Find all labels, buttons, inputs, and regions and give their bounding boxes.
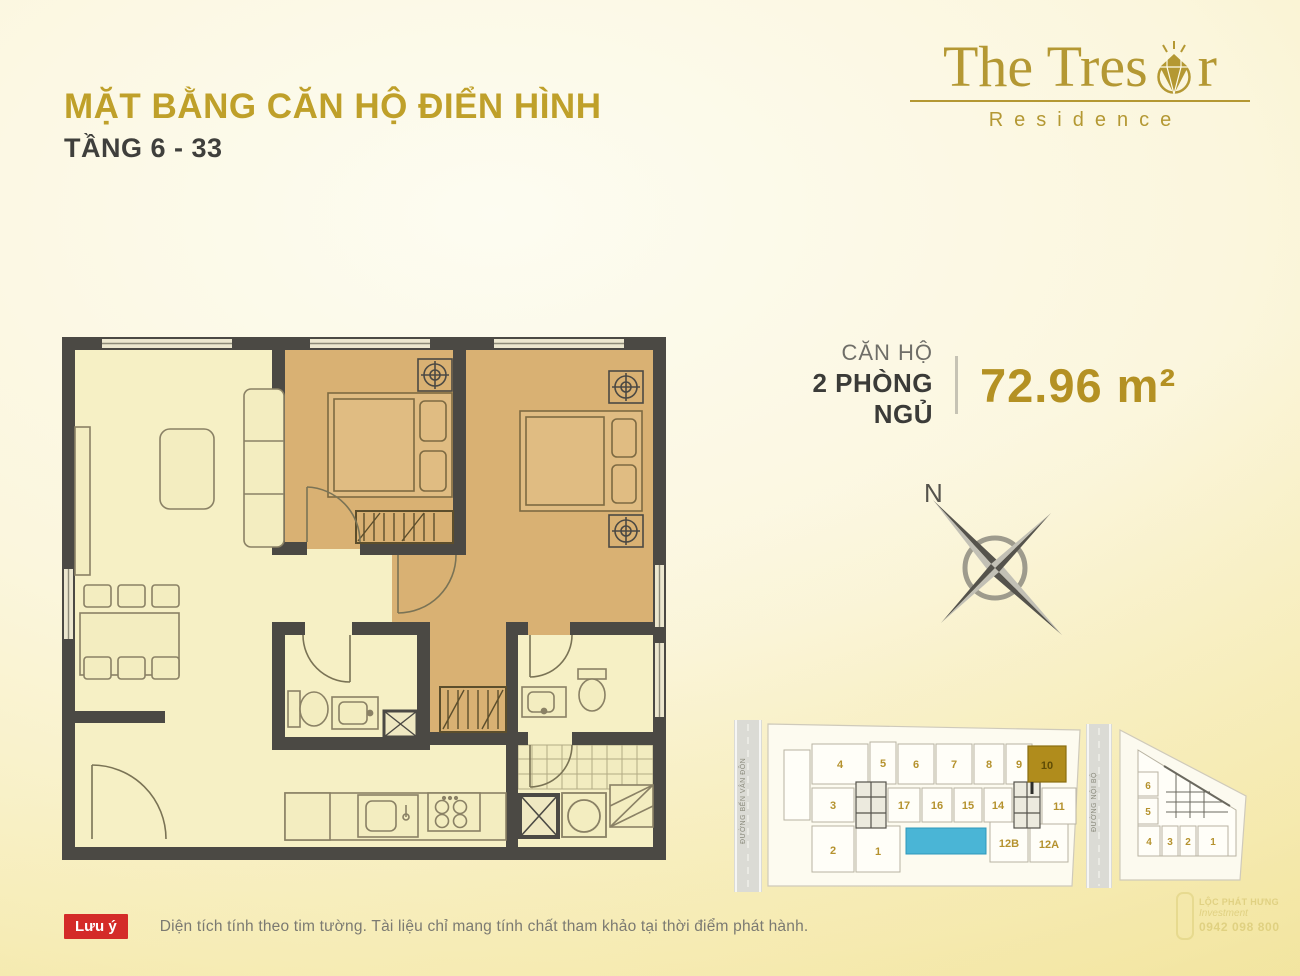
compass-arms	[933, 500, 1062, 635]
unit-label: 3	[1167, 837, 1173, 848]
apartment-floorplan	[62, 337, 666, 860]
sofa	[244, 389, 284, 547]
toilet	[578, 669, 606, 679]
unit-label: 6	[913, 759, 919, 771]
bed1-wardrobe	[356, 511, 453, 543]
unit-label: 12A	[1039, 839, 1059, 851]
brand-name-prefix: The Tres	[943, 38, 1148, 96]
watermark-line2: Investment	[1199, 908, 1280, 921]
unit-label: 5	[1145, 807, 1151, 818]
unit-type: 2 PHÒNG NGỦ	[748, 368, 933, 430]
kitchen	[285, 793, 506, 840]
kitchen-sink	[358, 795, 418, 837]
bed2-pillow	[612, 419, 636, 457]
unit-label: 2	[830, 845, 836, 857]
diamond-icon	[1151, 40, 1197, 98]
unit-label-highlighted: 10	[1041, 760, 1053, 772]
shelf	[75, 427, 90, 575]
bed1-pillow	[420, 401, 446, 441]
compass-rose: N	[900, 468, 1075, 648]
building2: 6 5 4 3 2 1	[1120, 730, 1246, 880]
swimming-pool	[906, 828, 986, 854]
storage-hatch	[610, 785, 653, 827]
road-left: ĐƯỜNG BẾN VÂN ĐỒN	[734, 720, 762, 892]
unit-area: 72.96 m²	[980, 358, 1176, 413]
unit-label: 1	[875, 846, 881, 858]
unit-label: 9	[1016, 759, 1022, 771]
unit-label: 2	[1185, 837, 1191, 848]
unit-label: 14	[992, 800, 1005, 812]
laundry-tile-floor	[518, 745, 653, 789]
note-badge: Lưu ý	[64, 914, 128, 939]
site-plan: ĐƯỜNG BẾN VÂN ĐỒN	[728, 714, 1250, 898]
unit-label: CĂN HỘ	[748, 340, 933, 366]
unit-label: 12B	[999, 838, 1019, 850]
title-block: MẶT BẰNG CĂN HỘ ĐIỂN HÌNH TẦNG 6 - 33	[64, 88, 601, 164]
unit-label: 15	[962, 800, 974, 812]
unit-labels: CĂN HỘ 2 PHÒNG NGỦ	[748, 340, 933, 430]
compass-north-label: N	[924, 478, 943, 508]
unit-label: 11	[1053, 801, 1065, 813]
unit-label: 1	[1210, 837, 1216, 848]
unit-info-divider	[955, 356, 958, 414]
toilet	[288, 691, 300, 727]
watermark-line3: 0942 098 800	[1199, 920, 1280, 935]
road-right: ĐƯỜNG NỘI BỘ	[1086, 724, 1112, 888]
unit-info: CĂN HỘ 2 PHÒNG NGỦ 72.96 m²	[748, 340, 1176, 430]
unit-label: 4	[1146, 837, 1152, 848]
note-text: Diện tích tính theo tim tường. Tài liệu …	[160, 918, 809, 936]
brand-logo: The Tres r Residence	[880, 38, 1280, 132]
unit-label: 4	[837, 759, 844, 771]
unit-label: 8	[986, 759, 992, 771]
page-title: MẶT BẰNG CĂN HỘ ĐIỂN HÌNH	[64, 88, 601, 127]
shaft	[520, 795, 558, 837]
watermark-line1: LỘC PHÁT HƯNG	[1199, 897, 1280, 908]
shaft	[384, 711, 417, 737]
brand-tagline: Residence	[880, 109, 1280, 132]
brand-name-suffix: r	[1198, 38, 1217, 96]
note-bar: Lưu ý Diện tích tính theo tim tường. Tài…	[64, 914, 808, 939]
hall-closet	[440, 687, 506, 732]
bed2-pillow	[612, 465, 636, 503]
stove	[428, 793, 480, 831]
unit-label: 16	[931, 800, 943, 812]
unit-label: 17	[898, 800, 910, 812]
unit-label: 5	[880, 758, 886, 770]
logo-divider	[910, 100, 1250, 102]
unit-label: 6	[1145, 781, 1151, 792]
watermark-logo-icon	[1176, 892, 1194, 940]
bed1-pillow	[420, 451, 446, 491]
page-subtitle: TẦNG 6 - 33	[64, 133, 601, 164]
unit-label: 3	[830, 800, 836, 812]
agency-watermark: LỘC PHÁT HƯNG Investment 0942 098 800	[1176, 892, 1296, 940]
page: MẶT BẰNG CĂN HỘ ĐIỂN HÌNH TẦNG 6 - 33 Th…	[0, 0, 1300, 976]
brand-name: The Tres r	[880, 38, 1280, 96]
unit-label: 7	[951, 759, 957, 771]
building1: 4 5 6 7 8 9 3 17 16 15 14 11 2 1 12B 12A…	[784, 742, 1076, 872]
road-right-label: ĐƯỜNG NỘI BỘ	[1089, 772, 1098, 832]
washing-machine	[562, 793, 606, 837]
coffee-table	[160, 429, 214, 509]
